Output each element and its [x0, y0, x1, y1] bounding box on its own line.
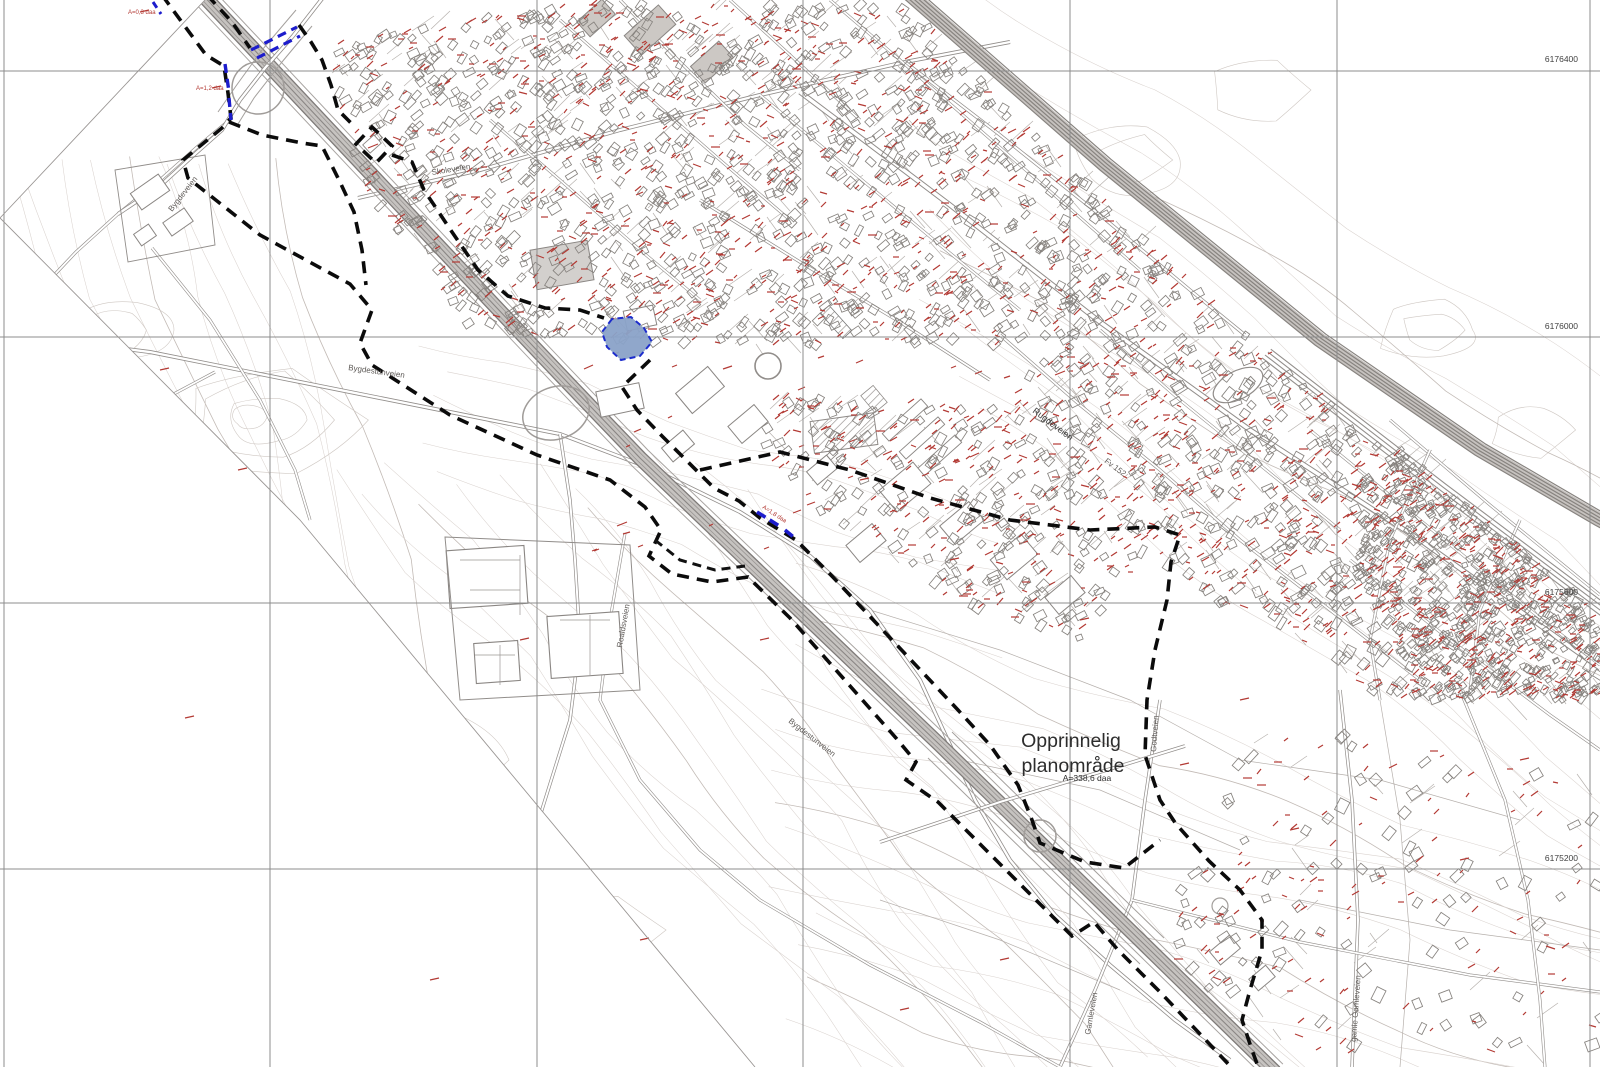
- svg-text:A=1,2 daa: A=1,2 daa: [196, 86, 224, 92]
- svg-text:6176000: 6176000: [1545, 321, 1578, 331]
- svg-text:A=338,6 daa: A=338,6 daa: [1063, 773, 1112, 783]
- svg-text:6175600: 6175600: [1545, 587, 1578, 597]
- svg-text:6175200: 6175200: [1545, 853, 1578, 863]
- svg-text:6176400: 6176400: [1545, 54, 1578, 64]
- svg-text:A=0,3 daa: A=0,3 daa: [128, 10, 156, 16]
- svg-text:Opprinnelig: Opprinnelig: [1021, 730, 1121, 752]
